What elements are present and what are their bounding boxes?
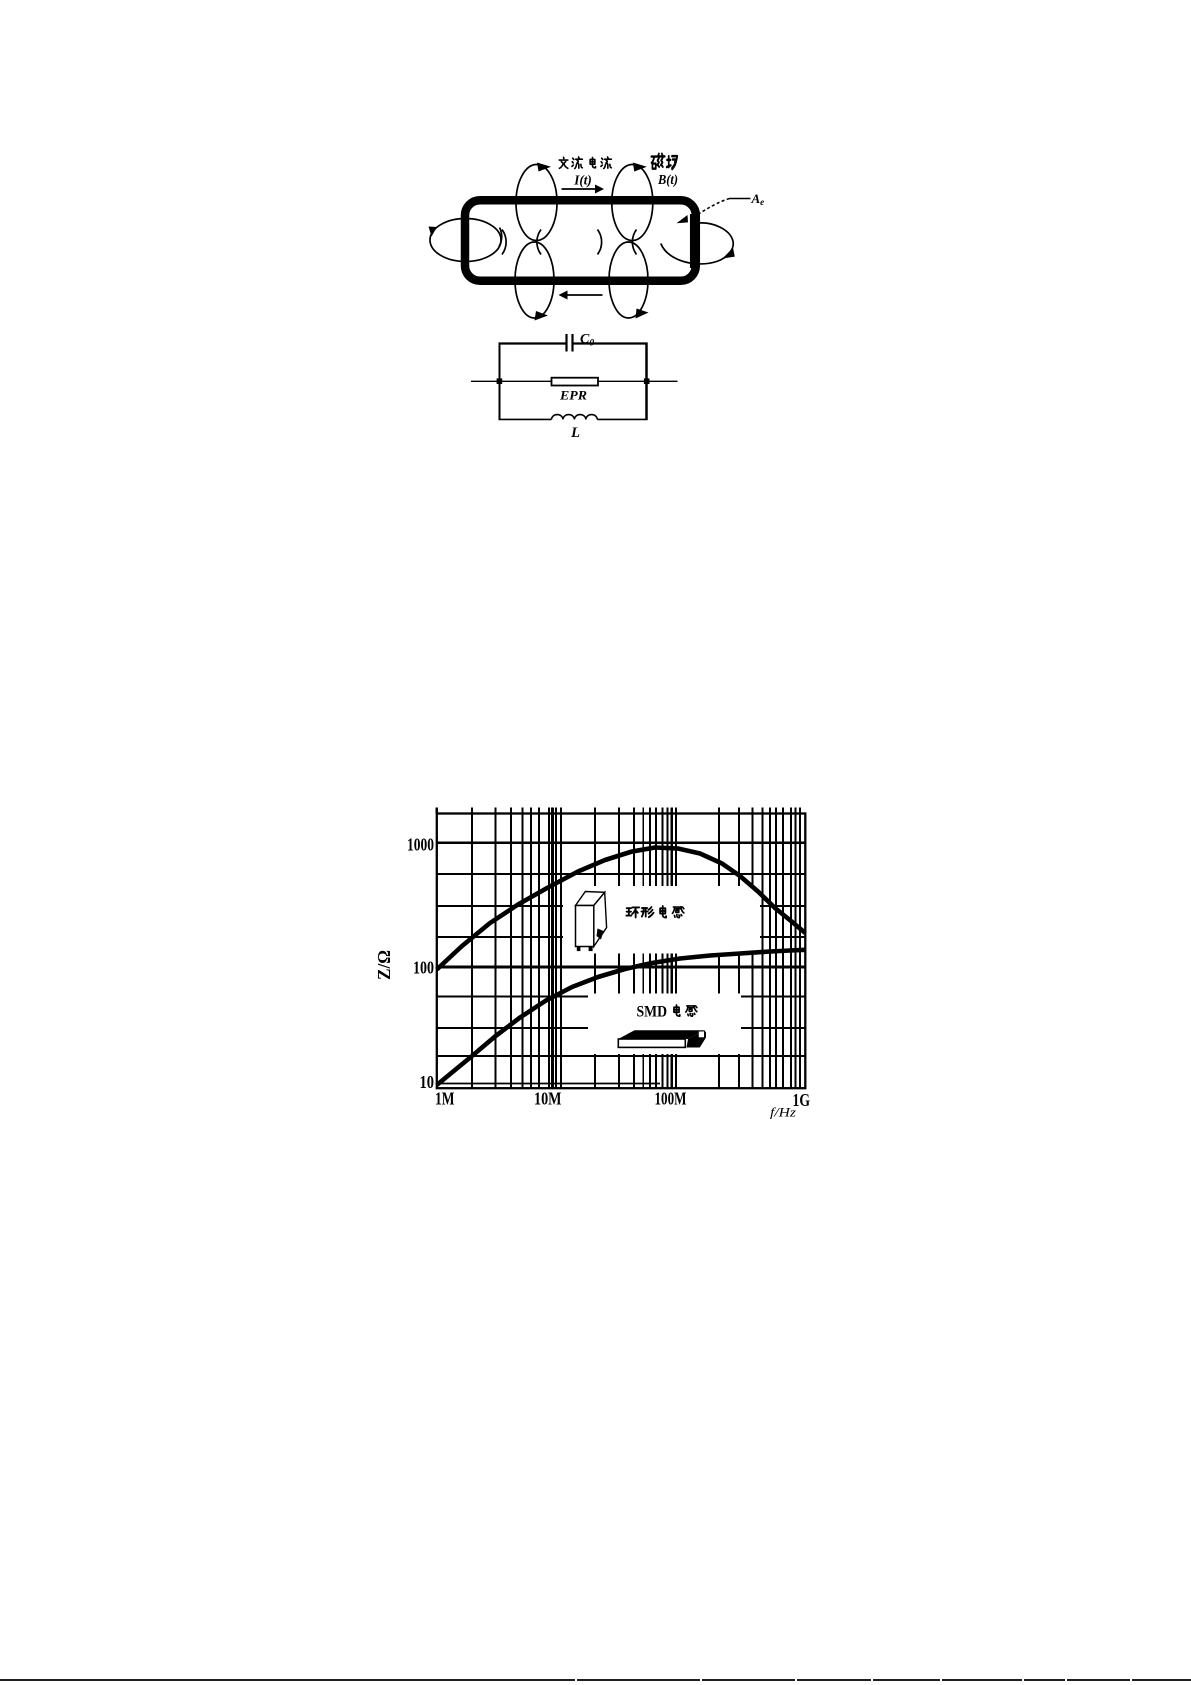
svg-text:100: 100 xyxy=(413,958,434,978)
svg-text:I(t): I(t) xyxy=(573,173,591,188)
svg-text:100M: 100M xyxy=(655,1089,687,1109)
svg-text:Z/Ω: Z/Ω xyxy=(374,950,394,980)
svg-text:1000: 1000 xyxy=(407,835,434,855)
svg-text:SMD: SMD xyxy=(637,1004,668,1021)
svg-text:1M: 1M xyxy=(435,1089,455,1109)
svg-text:C0: C0 xyxy=(580,332,594,349)
svg-text:EPR: EPR xyxy=(559,388,587,403)
svg-text:f/Hz: f/Hz xyxy=(770,1105,796,1120)
svg-text:10: 10 xyxy=(420,1072,435,1092)
svg-text:L: L xyxy=(570,425,580,441)
svg-text:B(t): B(t) xyxy=(657,172,678,187)
svg-text:10M: 10M xyxy=(534,1089,562,1109)
svg-text:Ae: Ae xyxy=(751,191,765,207)
